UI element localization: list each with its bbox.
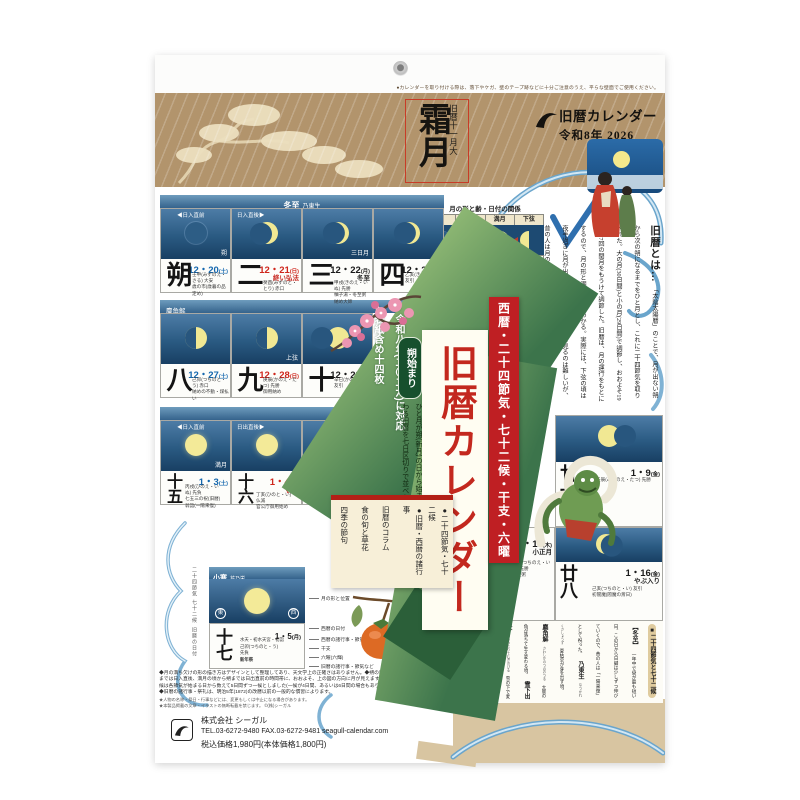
company-name: 株式会社 シーガル	[201, 715, 461, 726]
day-cell-21: 1・9(金) 廿一 壬辰(みずのえ・たつ) 先勝	[555, 415, 663, 527]
compass-west: 西	[288, 608, 299, 619]
phase-label: 下弦	[515, 215, 543, 225]
moon-phase-label: 満月	[215, 460, 227, 469]
day-cell-2: 12・21(日) 終い弘法 二 癸酉(みずのと・とり) 赤口	[231, 208, 302, 293]
pine-illustration	[159, 93, 419, 187]
moon-icon-gibbous	[327, 327, 349, 349]
day-cell-15: 満月 1・3(土) 十五 丙戌(ひのえ・いぬ) 先負七五三の祝(旧暦)翁詣(一陽…	[160, 420, 231, 505]
moon-icon-half	[256, 327, 278, 349]
compass-east: 東	[215, 608, 226, 619]
moon-icon-full	[244, 588, 270, 614]
saku-hajimari-badge: 朔始まり	[398, 337, 422, 399]
legend-sample-lines: 水天・初水天宮・初詣己卯(つちのと・う)先負 新年祭	[240, 637, 302, 663]
caution-text: ●カレンダーを取り付ける際は、落下やケガ、壁のテープ跡などに十分ご注意のうえ、平…	[389, 84, 659, 91]
kou-entry-yomi: さわしかのつのおつる	[542, 646, 546, 680]
cell-notes: 己卯(つちのと・う) 赤口納めの不動・煤払い	[192, 377, 230, 402]
lunar-day-number: 八	[164, 366, 190, 392]
price: 税込価格1,980円(本体価格1,800円)	[201, 739, 461, 750]
legend-side-label-day: 旧暦の日付	[191, 627, 198, 657]
annotation-rokuyo: 六曜(六輝)	[309, 654, 343, 661]
kou-entry-name: 麋角解	[541, 624, 547, 642]
lunar-day-number: 二	[235, 261, 261, 287]
moon-icon-new	[185, 222, 207, 244]
touji-body: 一年中で昼が最も短い日。この日から日脚は少しずつ伸びていくので、昔の人は「一陽来…	[578, 624, 637, 698]
annotation-eto: 干支	[309, 645, 331, 652]
day-cell-9: 上弦 12・28(日) 九 庚辰(かのえ・たつ) 先勝御用納め	[231, 313, 302, 398]
moon-phase-label: 三日月	[351, 248, 369, 257]
seagull-icon	[533, 107, 559, 129]
legend-moon-sky: 東 西	[209, 579, 305, 623]
cell-notes: 丁亥(ひのと・い) 仏滅官公庁御用始め	[256, 492, 294, 511]
sekki-label: 冬至	[283, 201, 299, 208]
lunar-day-number: 十	[306, 366, 332, 392]
cell-notes: 壬申(みずのえ・さる) 大安歳の市(歳暮の品定め)	[192, 272, 230, 297]
brand-block: 旧暦カレンダー 令和8年 2026	[559, 105, 657, 143]
lunar-day-number: 九	[235, 366, 261, 392]
cell-notes: 庚辰(かのえ・たつ) 先勝御用納め	[263, 377, 301, 396]
moon-in-scene	[613, 151, 630, 168]
seagull-stamp-icon	[171, 719, 193, 741]
company-contact: TEL.03-6272-9480 FAX.03-6272-9481 seagul…	[201, 728, 461, 735]
legend-cell-body: 1・5(月) 十七 水天・初水天宮・初詣己卯(つちのと・う)先負 新年祭	[209, 623, 305, 669]
calendar-page: ●カレンダーを取り付ける際は、落下やケガ、壁のテープ跡などに十分ご注意のうえ、平…	[155, 55, 665, 763]
lunar-day-number: 十七	[214, 628, 231, 660]
lunar-day-number: 朔	[164, 261, 190, 287]
moon-direction-marker: 日出直後▶	[237, 423, 265, 431]
touji-title: 【冬至】	[631, 624, 637, 648]
annotation-events-new: 西暦の諸行事・節気など	[309, 636, 374, 643]
subtitle: 西暦・二十四節気・七十二候・干支・六曜	[496, 302, 513, 559]
moon-sky	[161, 314, 230, 364]
contents-item: 四季の節句	[337, 506, 350, 576]
cell-notes: 丙戌(ひのえ・いぬ) 先負七五三の祝(旧暦)翁詣(一陽来復)	[185, 484, 223, 509]
event-label: 小正月	[533, 546, 553, 556]
cell-notes: 己亥(つちのと・い) 友引初閻魔(閻魔の斎日)	[592, 586, 658, 598]
lunar-day-number: 十五	[164, 473, 180, 503]
kou-entry-desc: 夏枯草が芽を出す頃。	[560, 649, 565, 693]
hanger-hole	[393, 61, 408, 76]
moon-icon-crescent	[325, 220, 352, 247]
lunar-day-number: 廿八	[559, 564, 577, 598]
lunar-day-number: 四	[377, 261, 403, 287]
moon-sky: 三日月	[303, 209, 372, 259]
lunar-day-number: 廿一	[559, 464, 577, 498]
contents-item: ●月名の主な別名	[450, 506, 453, 576]
contents-item: ●二十四節気・七十二候	[425, 506, 451, 576]
moon-icon-waning-crescent	[594, 532, 619, 557]
day-cell-3: 三日月 12・22(月) 冬至 三 甲戌(きのえ・いぬ) 先勝柚子湯・冬至粥納め…	[302, 208, 373, 293]
annotation-events-old: 旧暦の諸行事・節気など	[309, 663, 374, 670]
moon-sky: 上弦	[232, 314, 301, 364]
moon-sky	[374, 209, 443, 259]
moon-icon-full	[185, 434, 207, 456]
cloud-in-scene	[587, 175, 663, 189]
moon-icon-crescent	[253, 219, 281, 247]
article-header-sekki: ■二十四節気と七十二候	[648, 624, 656, 698]
contents-item: 旧暦のコラム	[379, 506, 392, 576]
product-photo: ●カレンダーを取り付ける際は、落下やケガ、壁のテープ跡などに十分ご注意のうえ、平…	[0, 0, 800, 800]
cell-notes: 甲戌(きのえ・いぬ) 先勝柚子湯・冬至粥納め大師	[334, 280, 372, 305]
legend-side-label-sekki: 二十四節気 七十二候	[191, 567, 198, 623]
moon-phase-label: 上弦	[286, 353, 298, 362]
contents-box: ●月名の主な別名 ●二十四節気・七十二候 ●旧暦・西暦の諸行事 旧暦のコラム 食…	[331, 495, 453, 588]
day-cell-28: 1・16(金) やぶ入り 廿八 己亥(つちのと・い) 友引初閻魔(閻魔の斎日)	[555, 527, 663, 621]
day-cell-saku: 朔 12・20(土) 朔 壬申(みずのえ・さる) 大安歳の市(歳暮の品定め)	[160, 208, 231, 293]
about-title: 旧暦とは…	[649, 225, 660, 283]
row1-sekki-band: 冬至乃東生	[160, 195, 444, 208]
moon-direction-marker: 日入直後▶	[237, 211, 265, 219]
moon-icon-waning-gibbous	[598, 425, 620, 447]
moon-phase-label: 朔	[221, 248, 227, 257]
night-scene-panel	[587, 139, 663, 193]
cell-notes: 癸酉(みずのと・とり) 赤口	[263, 280, 301, 292]
badge-label: 朔始まり	[403, 348, 418, 388]
month-title-box: 旧暦十一月大 霜月	[405, 99, 469, 183]
month-label: 旧暦十一月大	[448, 104, 460, 182]
contents-item: ●旧暦・西暦の諸行事	[399, 506, 425, 576]
month-name: 霜月	[415, 102, 448, 182]
legend-sekki-band: 小寒芹乃栄	[209, 567, 305, 579]
day-cell-8: 12・27(土) 八 己卯(つちのと・う) 赤口納めの不動・煤払い	[160, 313, 231, 398]
contents-item: 食の旬と草花	[358, 506, 371, 576]
annotation-moon: 月の形と位置	[309, 595, 350, 602]
moon-direction-marker: ◀日入直前	[177, 423, 205, 431]
subtitle-banner: 西暦・二十四節気・七十二候・干支・六曜	[489, 297, 519, 563]
moon-icon-crescent	[396, 220, 423, 247]
moon-sky	[303, 314, 372, 364]
kou-entry-name: 乃東生	[577, 661, 583, 679]
brand-title: 旧暦カレンダー	[559, 105, 657, 125]
moon-icon-full	[256, 434, 278, 456]
lunar-day-number: 三	[306, 261, 332, 287]
moon-direction-marker: ◀日入直前	[177, 211, 205, 219]
lunar-day-number: 十六	[235, 473, 251, 503]
cell-notes: 壬辰(みずのえ・たつ) 先勝	[596, 477, 656, 483]
moon-sky	[556, 416, 662, 462]
moon-icon-half	[185, 327, 207, 349]
moon-sky	[556, 528, 662, 562]
annotation-date: 西暦の日付	[309, 625, 345, 632]
event-label: やぶ入り	[634, 575, 660, 585]
